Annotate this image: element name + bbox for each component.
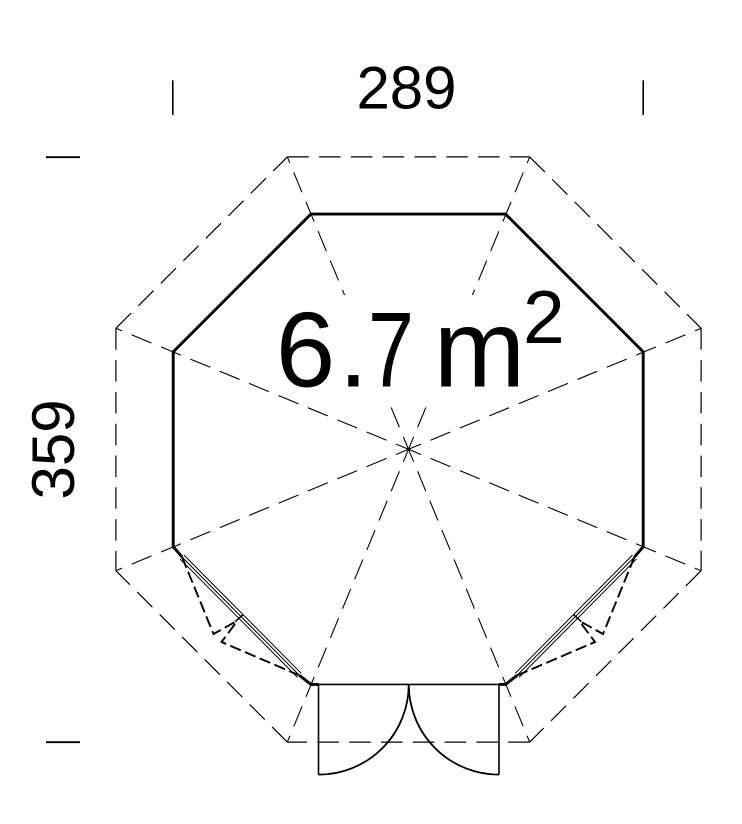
svg-text:m: m xyxy=(434,288,526,411)
svg-text:359: 359 xyxy=(20,399,87,499)
svg-text:289: 289 xyxy=(356,55,456,122)
svg-text:.: . xyxy=(339,290,369,410)
svg-text:7: 7 xyxy=(368,290,414,410)
svg-text:6: 6 xyxy=(276,290,336,410)
svg-text:2: 2 xyxy=(523,275,565,359)
